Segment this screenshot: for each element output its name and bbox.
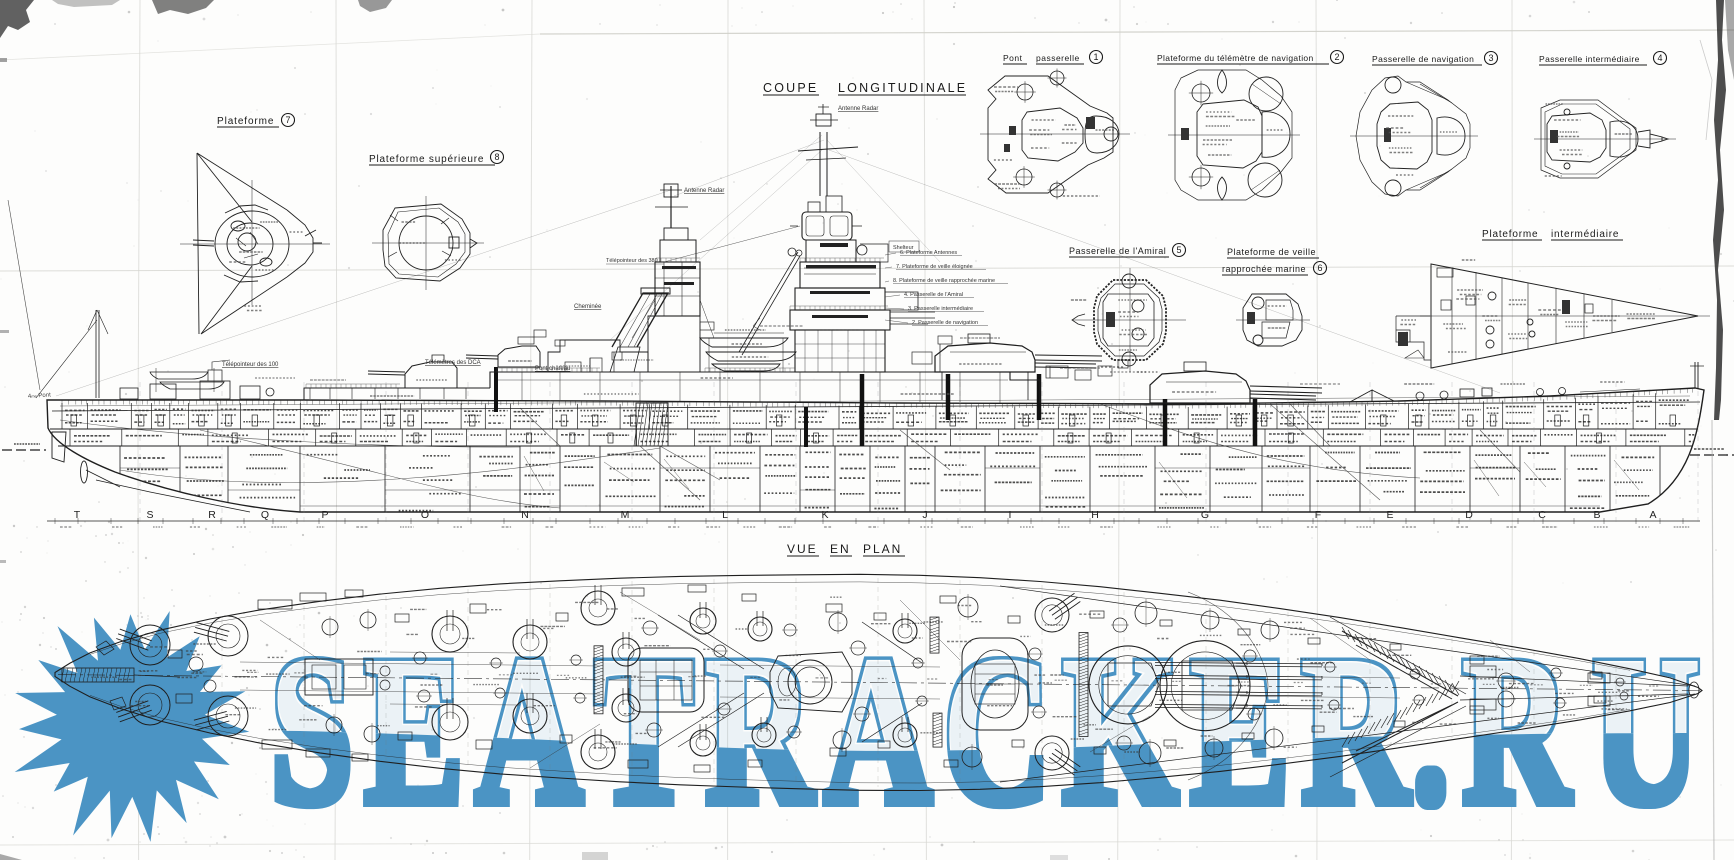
svg-text:P: P: [321, 509, 328, 521]
svg-text:passerelle: passerelle: [1036, 53, 1080, 63]
svg-text:Télépointeur des 100: Télépointeur des 100: [222, 362, 279, 368]
svg-text:6: 6: [1317, 263, 1322, 273]
svg-text:EN: EN: [830, 542, 851, 556]
svg-text:G: G: [1201, 509, 1209, 521]
svg-text:Passerelle de navigation: Passerelle de navigation: [1372, 54, 1474, 64]
svg-text:Plateforme supérieure: Plateforme supérieure: [369, 154, 484, 165]
svg-text:D: D: [1465, 509, 1473, 521]
svg-text:4. Passerelle de l’Amiral: 4. Passerelle de l’Amiral: [904, 292, 963, 298]
svg-text:3: 3: [1488, 53, 1493, 63]
svg-text:F: F: [1315, 509, 1321, 521]
svg-text:Shelteur: Shelteur: [893, 245, 914, 251]
svg-text:PLAN: PLAN: [863, 542, 902, 556]
svg-text:S: S: [146, 509, 153, 521]
svg-text:2. Passerelle de navigation: 2. Passerelle de navigation: [912, 320, 978, 326]
svg-text:VUE: VUE: [787, 542, 818, 556]
svg-text:J: J: [922, 509, 927, 521]
svg-text:M: M: [621, 509, 630, 521]
svg-text:A: A: [1649, 509, 1656, 521]
svg-text:Plateforme du télémètre de nav: Plateforme du télémètre de navigation: [1157, 53, 1314, 63]
svg-text:Antenne Radar: Antenne Radar: [684, 188, 724, 194]
svg-text:4: 4: [1657, 53, 1662, 63]
svg-text:C: C: [1538, 509, 1546, 521]
svg-text:B: B: [1593, 509, 1600, 521]
svg-text:K: K: [821, 509, 828, 521]
svg-text:Antenne Radar: Antenne Radar: [838, 106, 878, 112]
svg-text:T: T: [74, 509, 81, 521]
svg-text:N: N: [521, 509, 529, 521]
svg-text:8: 8: [494, 152, 499, 162]
svg-text:E: E: [1386, 509, 1393, 521]
svg-text:Plateforme: Plateforme: [1482, 229, 1538, 240]
svg-text:Q: Q: [261, 509, 269, 521]
svg-text:L: L: [722, 509, 728, 521]
svg-text:Cheminée: Cheminée: [574, 304, 602, 310]
svg-text:3. Passerelle intermédiaire: 3. Passerelle intermédiaire: [908, 306, 973, 312]
svg-text:R: R: [208, 509, 216, 521]
svg-text:Passerelle intermédiaire: Passerelle intermédiaire: [1539, 54, 1640, 64]
svg-text:H: H: [1091, 509, 1099, 521]
svg-text:COUPE: COUPE: [763, 81, 818, 95]
svg-text:2: 2: [1334, 52, 1339, 62]
svg-text:7. Plateforme de veille éloign: 7. Plateforme de veille éloignée: [896, 264, 973, 270]
svg-text:Pont: Pont: [1003, 53, 1023, 63]
svg-text:Télémètres des DCA: Télémètres des DCA: [425, 360, 481, 366]
svg-text:1: 1: [1093, 52, 1098, 62]
svg-text:rapprochée marine: rapprochée marine: [1222, 264, 1306, 274]
svg-text:O: O: [421, 509, 429, 521]
svg-text:Plateforme de veille: Plateforme de veille: [1227, 247, 1316, 257]
svg-text:I: I: [1009, 509, 1012, 521]
svg-text:Télépointeur des 380: Télépointeur des 380: [606, 258, 658, 264]
svg-text:LONGITUDINALE: LONGITUDINALE: [838, 81, 967, 95]
svg-text:5: 5: [1176, 245, 1181, 255]
svg-text:7: 7: [285, 115, 290, 125]
svg-text:8. Plateforme de veille rappro: 8. Plateforme de veille rapprochée marin…: [893, 278, 995, 284]
svg-text:intermédiaire: intermédiaire: [1551, 229, 1619, 240]
svg-text:Plateforme: Plateforme: [217, 116, 274, 127]
